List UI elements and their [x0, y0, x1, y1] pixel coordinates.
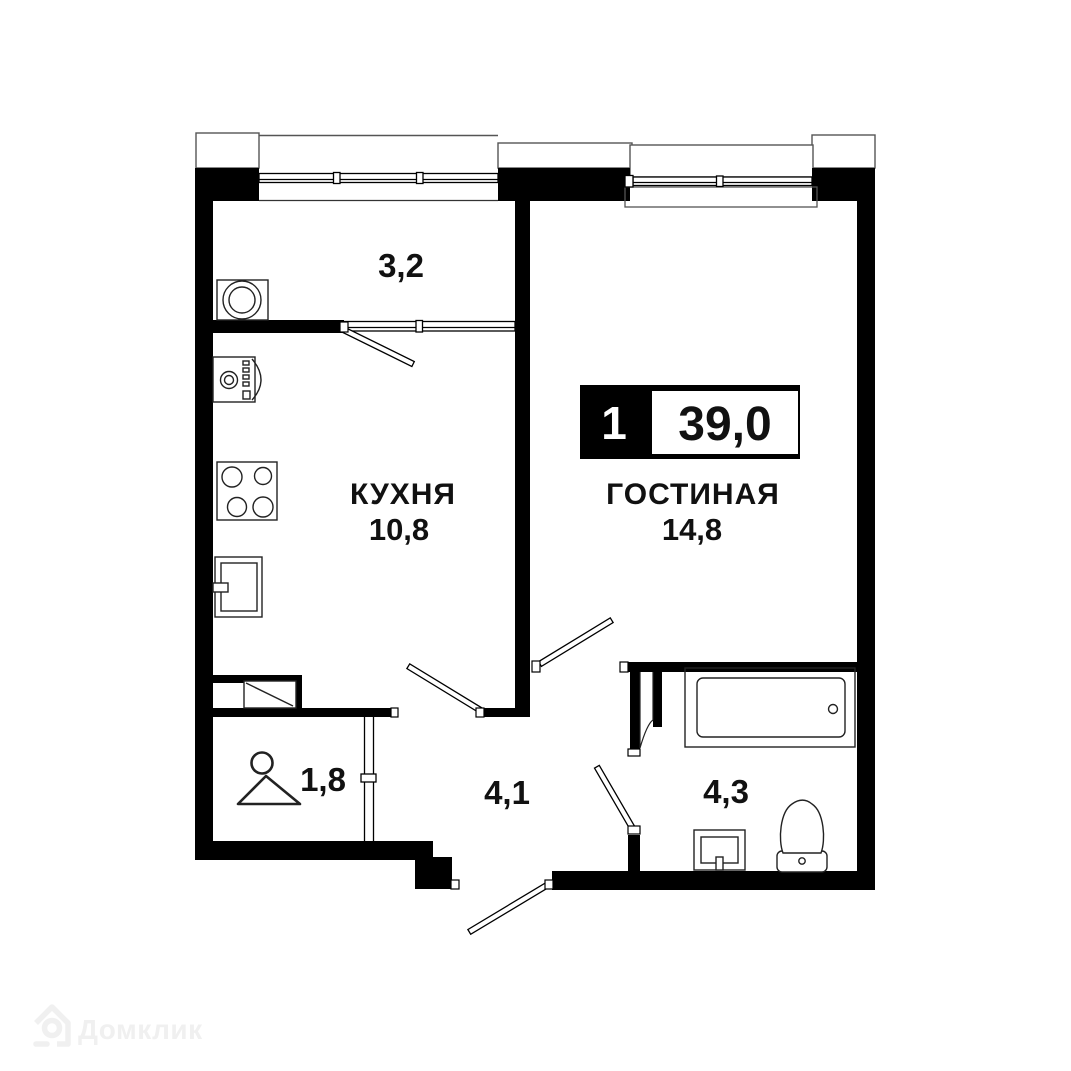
toilet-icon	[777, 800, 827, 872]
oven-icon	[213, 357, 261, 402]
bathroom-sink-icon	[694, 830, 745, 870]
balcony-door	[343, 328, 415, 367]
entry-door	[468, 882, 551, 935]
kitchen-door	[407, 664, 482, 712]
washing-machine-icon	[217, 280, 268, 320]
floor-plan-drawing: 1 39,0 КУХНЯ 10,8 ГОСТИНАЯ 14,8 3,2 1,8 …	[0, 0, 1071, 1071]
bathroom-area: 4,3	[703, 773, 749, 810]
bathroom-door	[595, 765, 636, 830]
floor-plan-page: 1 39,0 КУХНЯ 10,8 ГОСТИНАЯ 14,8 3,2 1,8 …	[0, 0, 1071, 1071]
balcony-area: 3,2	[378, 247, 424, 284]
vent-shaft-icon	[244, 681, 296, 708]
stove-icon	[217, 462, 277, 520]
wardrobe-area: 1,8	[300, 761, 346, 798]
bathroom-shaft-icon	[640, 672, 653, 748]
area-badge: 1 39,0	[580, 385, 800, 459]
clothes-hanger-icon	[238, 753, 300, 805]
watermark: Домклик	[36, 1007, 203, 1045]
kitchen-sink-icon	[213, 557, 262, 617]
watermark-brand: Домклик	[78, 1014, 203, 1045]
living-room-door	[539, 618, 614, 666]
bathtub-icon	[685, 668, 855, 747]
living-room-label: ГОСТИНАЯ	[606, 478, 780, 511]
kitchen-label: КУХНЯ	[350, 478, 456, 511]
domclick-logo-icon	[36, 1007, 68, 1044]
walls	[195, 168, 875, 890]
wardrobe-sliding-door	[361, 717, 376, 841]
badge-rooms-count: 1	[601, 397, 627, 449]
balcony-glazing-window	[259, 173, 498, 184]
living-room-window	[625, 176, 812, 188]
kitchen-balcony-window	[342, 321, 515, 333]
badge-total-area: 39,0	[678, 398, 771, 451]
hallway-area: 4,1	[484, 774, 530, 811]
kitchen-area: 10,8	[369, 512, 429, 547]
living-room-area: 14,8	[662, 512, 722, 547]
